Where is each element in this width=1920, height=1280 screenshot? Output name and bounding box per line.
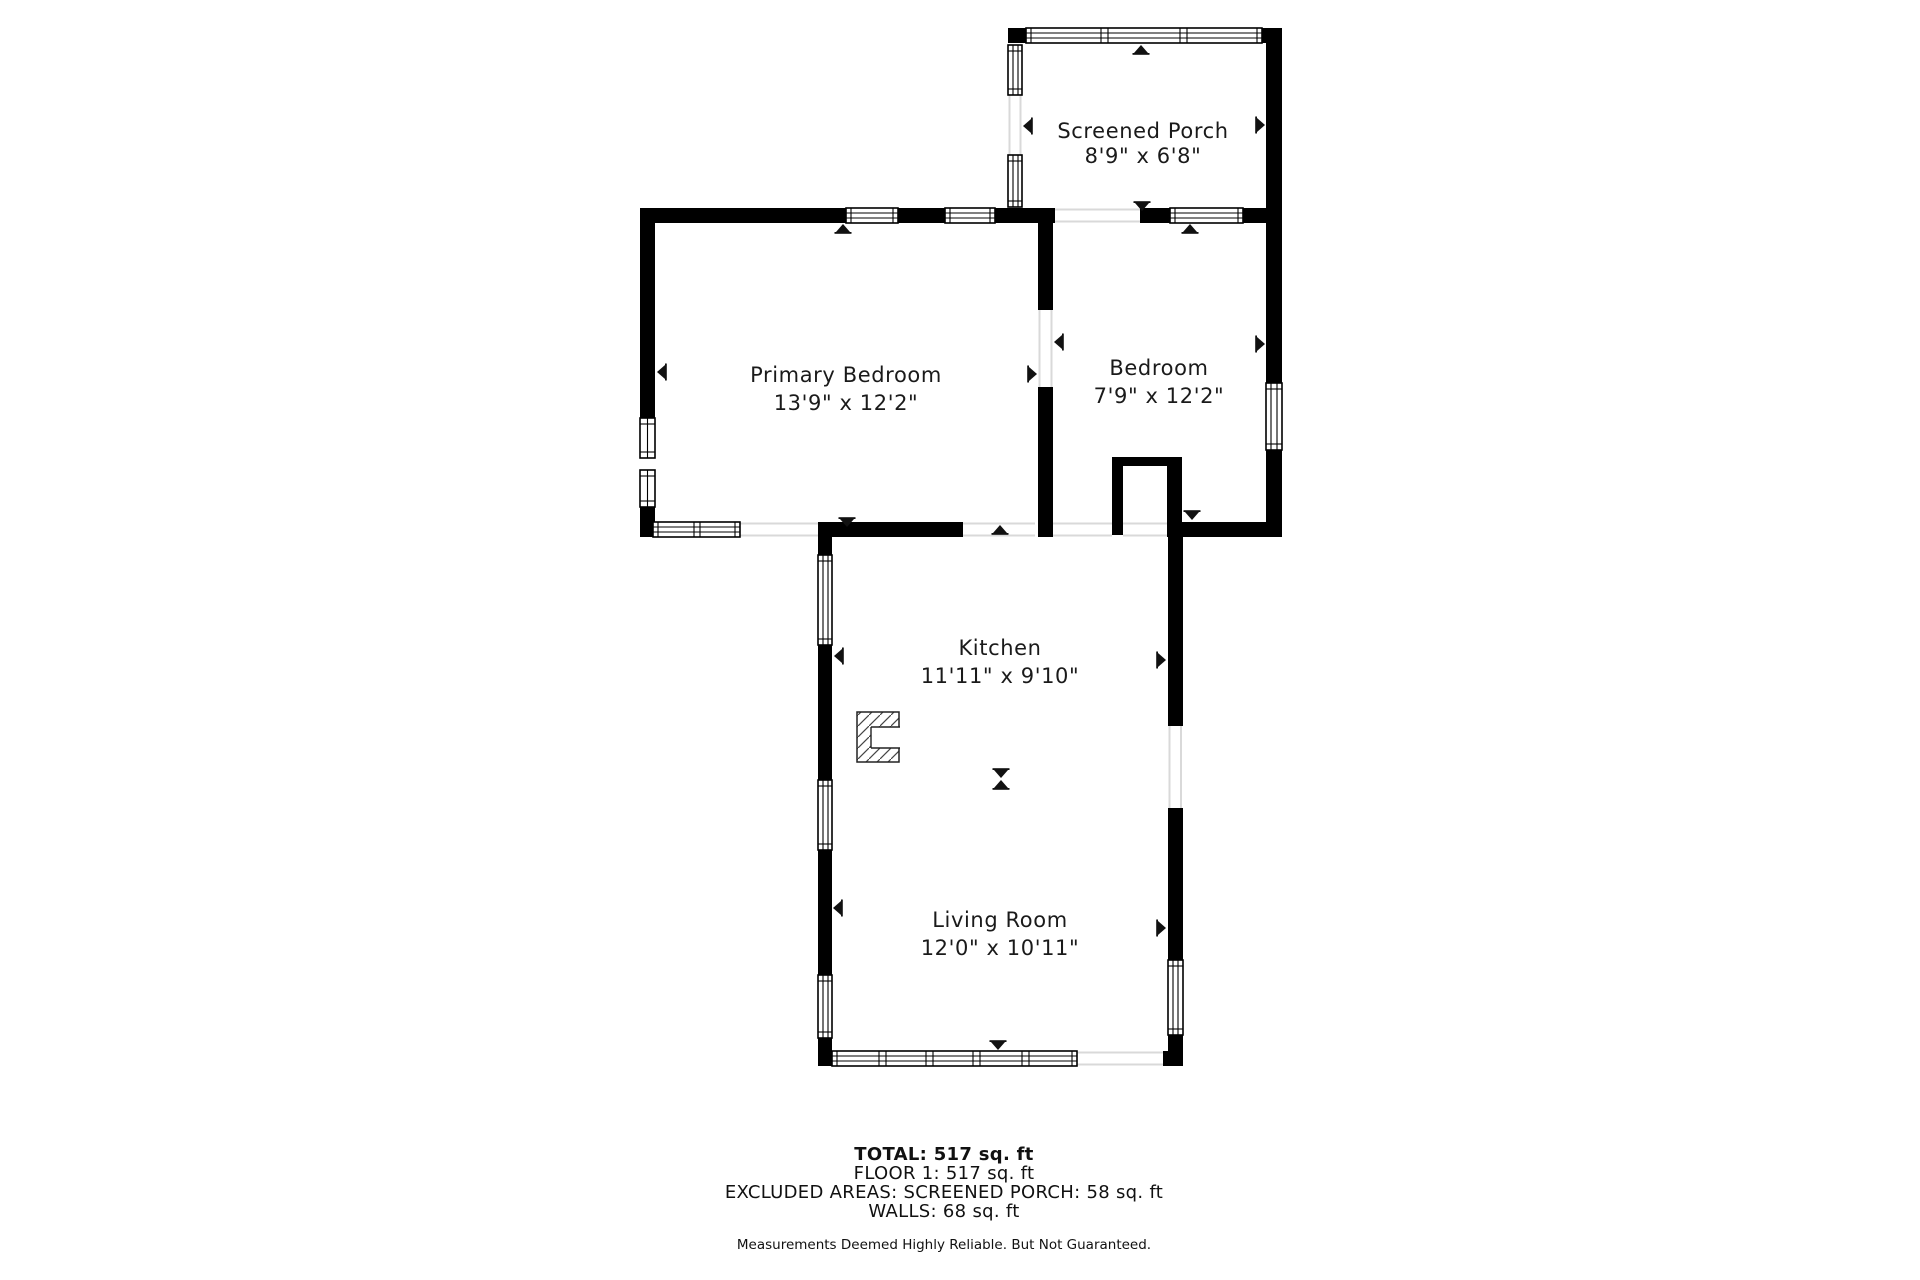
marker-kitchen-living-a [993, 768, 1010, 778]
window [1266, 383, 1282, 450]
marker-porch-top [1133, 45, 1150, 55]
footer-excluded: EXCLUDED AREAS: SCREENED PORCH: 58 sq. f… [725, 1182, 1163, 1203]
window [1026, 28, 1262, 43]
window [846, 208, 898, 223]
marker-porch-right [1255, 117, 1265, 134]
room-label-living-room: Living Room 12'0" x 10'11" [921, 908, 1080, 960]
window [653, 522, 740, 537]
room-name: Kitchen [958, 636, 1041, 660]
room-name: Bedroom [1109, 356, 1208, 380]
room-label-primary-bedroom: Primary Bedroom 13'9" x 12'2" [750, 363, 942, 415]
chimney [857, 712, 900, 762]
marker-living-left [833, 900, 843, 917]
room-dims: 13'9" x 12'2" [774, 391, 919, 415]
footer-disclaimer: Measurements Deemed Highly Reliable. But… [737, 1237, 1151, 1253]
window [818, 555, 832, 645]
room-name: Living Room [932, 908, 1068, 932]
marker-kitchen-left [834, 648, 844, 665]
marker-primary-top-window [835, 224, 852, 234]
window [945, 208, 995, 223]
room-label-screened-porch: Screened Porch 8'9" x 6'8" [1057, 119, 1228, 168]
marker-primary-door-b [1027, 366, 1037, 383]
room-dims: 12'0" x 10'11" [921, 936, 1080, 960]
marker-primary-left [657, 364, 667, 381]
footer-total: TOTAL: 517 sq. ft [854, 1144, 1034, 1165]
room-label-bedroom: Bedroom 7'9" x 12'2" [1094, 356, 1225, 408]
marker-living-bottom-window [990, 1040, 1007, 1050]
floor-plan-page: Screened Porch 8'9" x 6'8" Primary Bedro… [0, 0, 1920, 1280]
window [818, 780, 832, 850]
footer-walls: WALLS: 68 sq. ft [868, 1201, 1019, 1222]
window [1168, 960, 1183, 1035]
room-label-kitchen: Kitchen 11'11" x 9'10" [921, 636, 1080, 688]
marker-primary-door-a [1054, 334, 1064, 351]
room-name: Primary Bedroom [750, 363, 942, 387]
room-dims: 8'9" x 6'8" [1085, 144, 1202, 168]
window [818, 975, 832, 1038]
marker-bedroom-top-window [1182, 224, 1199, 234]
footer: TOTAL: 517 sq. ft FLOOR 1: 517 sq. ft EX… [725, 1144, 1163, 1253]
window [832, 1051, 1077, 1066]
marker-porch-left [1023, 118, 1033, 135]
floor-plan-drawing: Screened Porch 8'9" x 6'8" Primary Bedro… [0, 0, 1920, 1280]
footer-floor: FLOOR 1: 517 sq. ft [854, 1163, 1035, 1184]
marker-kitchen-top-opening [992, 525, 1009, 535]
marker-kitchen-living-b [993, 780, 1010, 790]
marker-kitchen-right [1156, 652, 1166, 669]
marker-bedroom-right-window [1255, 336, 1265, 353]
room-dims: 11'11" x 9'10" [921, 664, 1080, 688]
marker-bedroom-bottom [1184, 510, 1201, 520]
window [1008, 45, 1022, 95]
room-dims: 7'9" x 12'2" [1094, 384, 1225, 408]
window [1170, 208, 1243, 223]
window [640, 470, 655, 507]
marker-living-right [1156, 920, 1166, 937]
window [1008, 155, 1022, 207]
room-name: Screened Porch [1057, 119, 1228, 143]
window [640, 418, 655, 458]
